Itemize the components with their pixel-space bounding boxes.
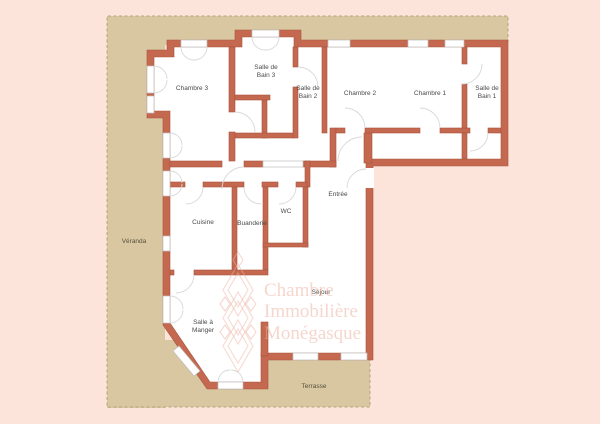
wall-small-room — [462, 133, 467, 159]
wall-sdb2-chambre2 — [322, 47, 327, 133]
label-salle-de-bain-1: Bain 1 — [478, 93, 497, 100]
wall-corridor-end — [364, 133, 372, 163]
wall-chambre3-sdb3 — [229, 47, 235, 112]
label-chambre-1: Chambre 1 — [414, 90, 447, 97]
wall-kitchen-top — [170, 182, 185, 187]
wall-wing-bottom — [336, 128, 345, 133]
label-cuisine: Cuisine — [192, 219, 214, 226]
label-salle-de-bain-2: Salle de — [296, 85, 320, 92]
floor-plan-canvas: Chambre 3 Salle de Bain 3 Salle de Bain … — [0, 0, 600, 424]
wall-sdb3-sdb2 — [293, 47, 298, 67]
label-terrasse: Terrasse — [302, 383, 327, 390]
watermark-line-1: Chambre — [264, 280, 334, 301]
wall-sdb3-bottom — [235, 95, 270, 100]
wall-wing-bottom — [365, 128, 420, 133]
wall-kitchen-bottom — [194, 270, 268, 275]
label-salle-a-manger: Salle à — [193, 319, 213, 326]
wall-wc-bottom — [263, 243, 308, 247]
floor-plan-page: Chambre 3 Salle de Bain 3 Salle de Bain … — [0, 0, 600, 424]
wall-corridor-bottom — [170, 161, 222, 167]
wall-kitchen-bottom — [170, 270, 174, 275]
label-veranda: Véranda — [122, 238, 147, 245]
wall-sdb3-sdb2 — [293, 87, 298, 138]
label-salle-a-manger: Manger — [192, 327, 215, 334]
wall-wing-bottom — [440, 128, 470, 133]
label-wc: WC — [281, 208, 292, 215]
watermark-line-2: Immobilière — [264, 301, 358, 322]
wall-kitchen-top — [203, 182, 244, 187]
wall-closet — [262, 100, 267, 138]
label-salle-de-bain-3: Bain 3 — [257, 72, 276, 79]
wall-kitchen-top — [262, 182, 278, 187]
wall-chambre3-sdb3 — [229, 132, 235, 161]
wall-corridor-bottom — [244, 161, 263, 167]
sejour-door-opening — [365, 168, 374, 188]
wall-wing-bottom — [488, 128, 501, 133]
label-chambre-2: Chambre 2 — [344, 90, 377, 97]
label-salle-de-bain-3: Salle de — [254, 64, 278, 71]
terrace-area-right — [280, 356, 370, 407]
wall-chambre1-sdb1 — [462, 84, 467, 128]
label-chambre-3: Chambre 3 — [176, 85, 209, 92]
wall-corridor-top-left — [235, 133, 294, 138]
label-salle-de-bain-2: Bain 2 — [299, 93, 318, 100]
watermark-line-3: Monégasque — [264, 323, 361, 344]
label-salle-de-bain-1: Salle de — [475, 85, 499, 92]
label-entree: Entrée — [328, 191, 348, 198]
wall-chambre1-sdb1 — [462, 47, 467, 64]
label-buanderie: Buanderie — [237, 220, 267, 227]
wall-wc-right — [303, 187, 308, 247]
wall-buanderie-wc — [263, 187, 268, 270]
wall-kitchen-top — [296, 182, 307, 187]
